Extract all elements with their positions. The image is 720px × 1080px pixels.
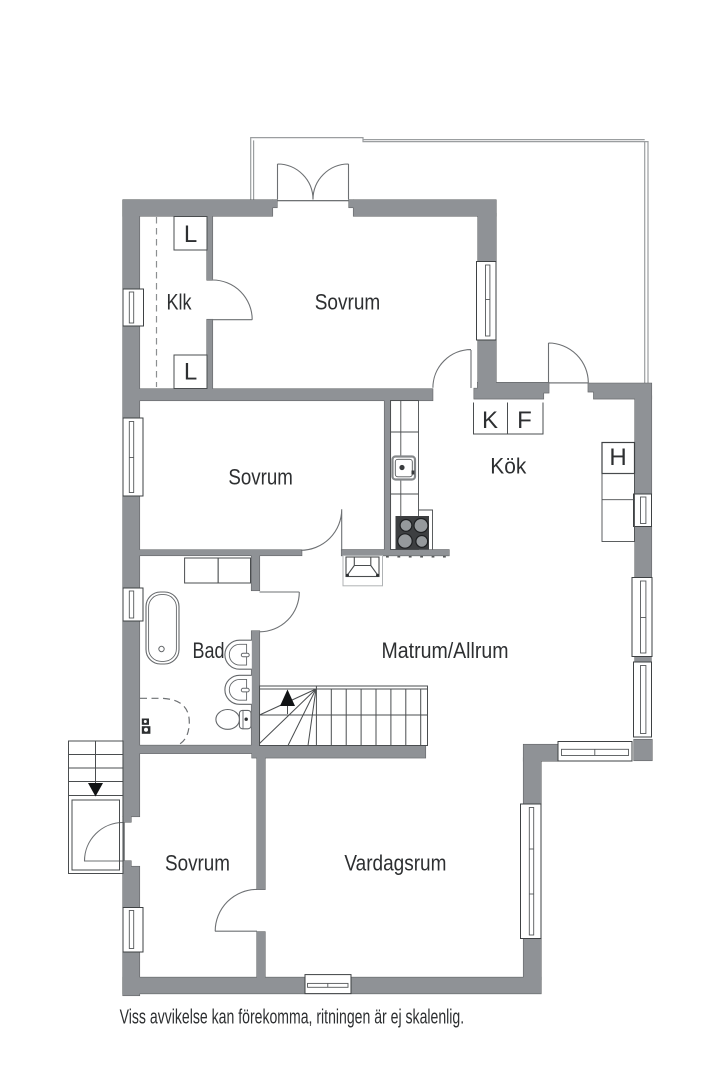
svg-text:Sovrum: Sovrum <box>228 465 293 490</box>
svg-text:Matrum/Allrum: Matrum/Allrum <box>382 638 509 663</box>
svg-text:Sovrum: Sovrum <box>165 851 230 876</box>
svg-text:Vardagsrum: Vardagsrum <box>344 850 446 875</box>
svg-text:Viss avvikelse kan förekomma,: Viss avvikelse kan förekomma, ritningen … <box>120 1006 465 1029</box>
svg-text:K: K <box>482 407 498 434</box>
svg-text:Kök: Kök <box>490 454 527 479</box>
svg-text:L: L <box>184 221 197 248</box>
svg-text:H: H <box>609 444 626 471</box>
svg-text:Sovrum: Sovrum <box>315 289 381 314</box>
svg-text:L: L <box>184 359 197 386</box>
svg-text:Klk: Klk <box>167 289 193 314</box>
svg-text:F: F <box>517 407 532 434</box>
svg-text:Bad: Bad <box>193 638 225 663</box>
